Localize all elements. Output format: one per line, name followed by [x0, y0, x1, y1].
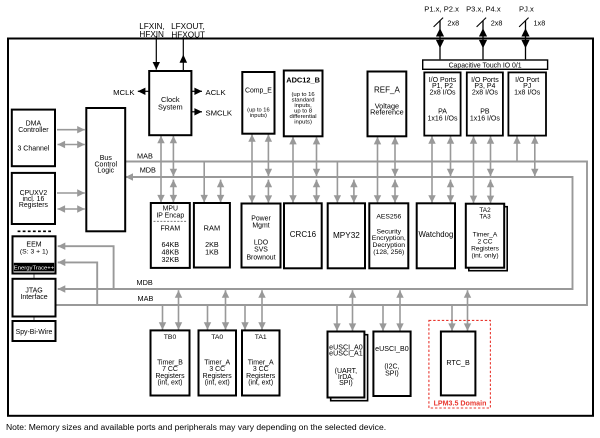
svg-text:MDB: MDB	[140, 165, 156, 174]
svg-text:inputs): inputs)	[294, 120, 312, 126]
svg-text:MPY32: MPY32	[333, 231, 360, 240]
svg-text:CRC16: CRC16	[290, 230, 317, 239]
svg-text:PJ.x: PJ.x	[519, 5, 534, 14]
svg-text:(int, ext): (int, ext)	[248, 380, 273, 387]
svg-text:SMCLK: SMCLK	[206, 109, 233, 118]
svg-text:TA1: TA1	[255, 334, 267, 341]
svg-text:(int, ext): (int, ext)	[205, 380, 230, 387]
svg-text:Capacitive Touch IO 0/1: Capacitive Touch IO 0/1	[449, 62, 522, 69]
svg-text:RAM: RAM	[204, 224, 220, 233]
svg-text:eUSCI_B0: eUSCI_B0	[375, 345, 409, 353]
svg-text:Controller: Controller	[18, 127, 49, 134]
svg-text:P1.x, P2.x: P1.x, P2.x	[424, 5, 459, 14]
svg-text:(S: 3 + 1): (S: 3 + 1)	[20, 249, 48, 256]
svg-text:RTC_B: RTC_B	[446, 358, 470, 367]
svg-text:System: System	[158, 102, 183, 111]
svg-text:HFXIN: HFXIN	[139, 30, 164, 39]
svg-text:EnergyTrace++: EnergyTrace++	[14, 266, 55, 272]
svg-text:2 CC: 2 CC	[477, 238, 492, 245]
svg-text:2x8 I/Os: 2x8 I/Os	[429, 89, 456, 96]
svg-text:MAB: MAB	[138, 294, 154, 303]
svg-text:AES256: AES256	[376, 214, 401, 221]
svg-text:Reference: Reference	[370, 108, 404, 117]
svg-text:Note: Memory sizes and availab: Note: Memory sizes and available ports a…	[6, 422, 386, 432]
svg-text:Registers: Registers	[471, 246, 500, 253]
svg-text:Comp_E: Comp_E	[245, 87, 272, 94]
svg-text:MAB: MAB	[137, 152, 153, 161]
svg-text:1x16 I/Os: 1x16 I/Os	[428, 115, 458, 122]
svg-text:Interface: Interface	[20, 294, 47, 301]
svg-text:3 Channel: 3 Channel	[17, 145, 49, 152]
svg-text:TB0: TB0	[164, 334, 177, 341]
svg-text:TA3: TA3	[479, 213, 491, 220]
svg-text:Spy-Bi-Wire: Spy-Bi-Wire	[16, 329, 53, 336]
svg-text:HFXOUT: HFXOUT	[171, 30, 205, 39]
svg-text:REF_A: REF_A	[374, 86, 400, 95]
svg-text:Registers: Registers	[19, 202, 49, 209]
svg-text:EEM: EEM	[26, 241, 41, 248]
svg-text:IP Encap: IP Encap	[156, 212, 184, 219]
svg-text:inputs): inputs)	[250, 113, 267, 119]
svg-text:2x8: 2x8	[447, 18, 459, 27]
svg-text:SPI): SPI)	[339, 380, 353, 387]
svg-text:1x16 I/Os: 1x16 I/Os	[470, 115, 500, 122]
svg-text:(128, 256): (128, 256)	[373, 249, 404, 256]
svg-text:eUSCI_A1: eUSCI_A1	[329, 349, 363, 357]
svg-text:(int, ext): (int, ext)	[158, 380, 183, 387]
svg-text:TA0: TA0	[211, 334, 223, 341]
svg-text:MDB: MDB	[137, 278, 153, 287]
svg-text:Mgmt: Mgmt	[252, 222, 269, 229]
svg-text:2x8 I/Os: 2x8 I/Os	[472, 89, 499, 96]
svg-text:SPI): SPI)	[385, 370, 399, 377]
svg-text:SVS: SVS	[254, 247, 268, 254]
svg-text:LPM3.5 Domain: LPM3.5 Domain	[434, 399, 487, 407]
svg-text:ADC12_B: ADC12_B	[286, 75, 320, 84]
svg-text:(int. only): (int. only)	[471, 253, 498, 260]
svg-text:2x8: 2x8	[491, 18, 503, 27]
svg-text:1x8 I/Os: 1x8 I/Os	[514, 89, 541, 96]
svg-text:FRAM: FRAM	[161, 226, 181, 233]
svg-text:Logic: Logic	[97, 168, 114, 175]
svg-text:Decryption: Decryption	[373, 242, 406, 249]
svg-text:32KB: 32KB	[162, 255, 180, 264]
svg-text:MCLK: MCLK	[113, 88, 135, 97]
svg-text:ACLK: ACLK	[206, 88, 227, 97]
svg-text:Watchdog: Watchdog	[418, 230, 453, 239]
svg-text:P3.x, P4.x: P3.x, P4.x	[466, 5, 501, 14]
svg-text:Timer_A: Timer_A	[473, 231, 498, 238]
svg-text:Brownout: Brownout	[246, 254, 275, 261]
svg-text:1KB: 1KB	[205, 247, 219, 256]
svg-text:1x8: 1x8	[534, 18, 546, 27]
